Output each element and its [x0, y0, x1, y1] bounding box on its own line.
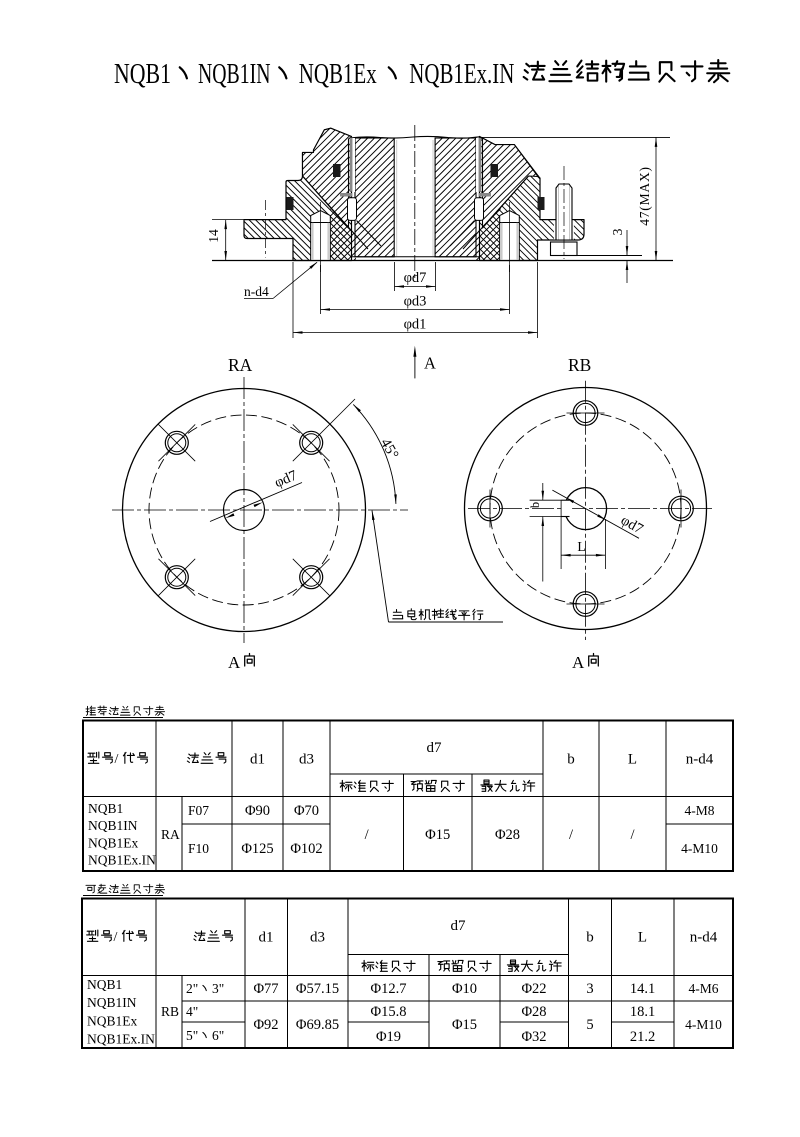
svg-text:3": 3"	[212, 981, 224, 996]
svg-text:6": 6"	[212, 1028, 224, 1043]
svg-text:NQB1Ex: NQB1Ex	[88, 835, 138, 850]
svg-text:NQB1IN: NQB1IN	[88, 818, 138, 833]
svg-text:3: 3	[586, 981, 593, 997]
svg-text:Φ22: Φ22	[521, 981, 546, 997]
svg-text:F07: F07	[188, 803, 209, 818]
svg-text:4-M8: 4-M8	[685, 803, 715, 818]
svg-text:n-d4: n-d4	[244, 284, 269, 299]
svg-text:Φ15.8: Φ15.8	[371, 1004, 407, 1020]
svg-text:d7: d7	[427, 740, 443, 756]
svg-text:Φ70: Φ70	[294, 803, 319, 819]
svg-text:Φ32: Φ32	[521, 1029, 546, 1045]
svg-text:b: b	[567, 752, 575, 768]
svg-text:φd3: φd3	[404, 294, 427, 310]
svg-text:NQB1Ex: NQB1Ex	[299, 58, 377, 90]
svg-text:Φ28: Φ28	[521, 1004, 546, 1020]
svg-text:n-d4: n-d4	[686, 752, 714, 768]
svg-text:Φ57.15: Φ57.15	[296, 981, 339, 997]
svg-text:L: L	[628, 752, 637, 768]
svg-text:NQB1Ex.IN: NQB1Ex.IN	[88, 853, 156, 868]
svg-text:d7: d7	[451, 918, 467, 934]
svg-text:A: A	[424, 354, 436, 373]
svg-text:b: b	[528, 502, 542, 508]
svg-text:4": 4"	[186, 1004, 198, 1019]
svg-text:NQB1IN: NQB1IN	[87, 995, 137, 1010]
svg-text:L: L	[638, 930, 647, 946]
svg-text:NQB1IN: NQB1IN	[198, 58, 271, 90]
svg-text:Φ28: Φ28	[495, 827, 520, 843]
svg-text:RA: RA	[161, 827, 180, 842]
svg-text:Φ102: Φ102	[290, 841, 322, 857]
svg-text:Φ69.85: Φ69.85	[296, 1017, 339, 1033]
svg-text:d3: d3	[299, 752, 314, 768]
svg-text:5": 5"	[186, 1028, 198, 1043]
svg-text:4-M10: 4-M10	[685, 1017, 722, 1032]
svg-text:NQB1: NQB1	[114, 58, 171, 90]
svg-text:φd7: φd7	[404, 270, 427, 286]
svg-text:φd1: φd1	[404, 317, 427, 333]
svg-text:Φ19: Φ19	[376, 1029, 401, 1045]
svg-text:NQB1: NQB1	[88, 801, 123, 816]
svg-text:Φ15: Φ15	[425, 827, 450, 843]
svg-text:NQB1Ex.IN: NQB1Ex.IN	[409, 58, 514, 90]
svg-text:NQB1: NQB1	[87, 977, 122, 992]
svg-text:14: 14	[206, 229, 221, 243]
svg-text:RB: RB	[161, 1004, 179, 1019]
svg-text:b: b	[586, 930, 594, 946]
svg-text:RB: RB	[568, 355, 591, 375]
svg-text:4-M10: 4-M10	[681, 841, 718, 856]
svg-text:18.1: 18.1	[630, 1004, 655, 1020]
svg-text:F10: F10	[188, 841, 209, 856]
svg-text:Φ12.7: Φ12.7	[371, 981, 407, 997]
svg-text:4-M6: 4-M6	[689, 981, 719, 996]
svg-text:Φ10: Φ10	[452, 981, 477, 997]
svg-text:Φ92: Φ92	[253, 1017, 278, 1033]
svg-text:NQB1Ex.IN: NQB1Ex.IN	[87, 1032, 155, 1047]
svg-text:d1: d1	[250, 752, 265, 768]
svg-text:/: /	[115, 752, 119, 767]
svg-text:Φ90: Φ90	[245, 803, 270, 819]
svg-text:Φ15: Φ15	[452, 1017, 477, 1033]
svg-text:RA: RA	[228, 355, 253, 375]
svg-text:A: A	[572, 653, 585, 672]
svg-text:n-d4: n-d4	[690, 930, 718, 946]
svg-text:5: 5	[586, 1017, 593, 1033]
svg-text:d3: d3	[310, 930, 325, 946]
svg-text:21.2: 21.2	[630, 1029, 655, 1045]
svg-text:/: /	[114, 930, 118, 945]
svg-text:NQB1Ex: NQB1Ex	[87, 1013, 137, 1028]
svg-text:L: L	[577, 539, 585, 554]
svg-text:Φ77: Φ77	[253, 981, 278, 997]
svg-text:3: 3	[610, 228, 625, 235]
svg-text:d1: d1	[259, 930, 274, 946]
svg-text:Φ125: Φ125	[241, 841, 273, 857]
svg-text:14.1: 14.1	[630, 981, 655, 997]
svg-text:A: A	[228, 653, 241, 672]
svg-text:47(MAX): 47(MAX)	[637, 166, 652, 226]
svg-text:2": 2"	[186, 981, 198, 996]
